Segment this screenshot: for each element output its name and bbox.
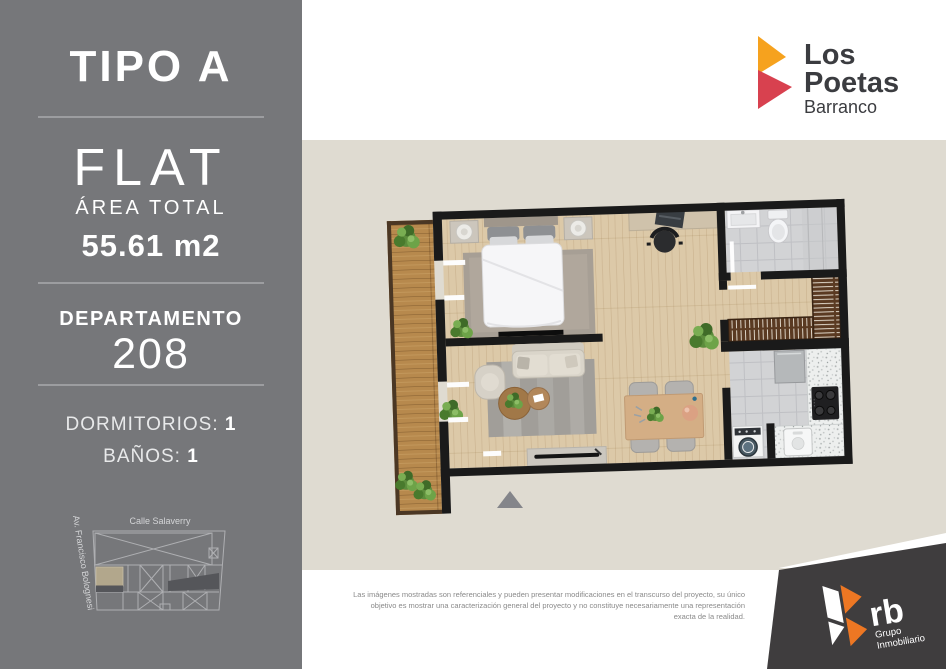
- area-value: 55.61 m2: [0, 228, 302, 264]
- disclaimer-line-1: Las imágenes mostradas son referenciales…: [353, 590, 745, 599]
- developer-logo: rb Grupo Inmobiliario: [822, 571, 926, 659]
- map-dark-corridor: [168, 573, 219, 591]
- brand-name-line2: Poetas: [804, 67, 899, 99]
- developer-group-line1: Grupo: [874, 626, 902, 641]
- rb-logomark-white-ribbon: [822, 583, 843, 625]
- divider: [38, 384, 264, 386]
- flyer-page: { "sidebar": { "bg_color": "#76777a", "t…: [0, 0, 946, 669]
- department-number: 208: [0, 330, 302, 379]
- rb-logomark-orange-triangle-bottom: [846, 614, 870, 646]
- rb-logomark-orange-triangle-top: [840, 582, 864, 614]
- unit-type: FLAT: [0, 138, 302, 198]
- rb-logomark-white-triangle: [828, 619, 847, 645]
- disclaimer-line-3: exacta de la realidad.: [674, 612, 745, 621]
- divider: [38, 282, 264, 284]
- disclaimer-text: Las imágenes mostradas son referenciales…: [325, 589, 745, 622]
- brand-subtitle: Barranco: [804, 97, 877, 117]
- unit-type-title: TIPO A: [0, 42, 302, 92]
- brand-logomark-red-triangle: [758, 70, 792, 109]
- divider: [38, 116, 264, 118]
- bedrooms-row: DORMITORIOS: 1: [0, 414, 302, 436]
- map-dark-band: [96, 586, 123, 593]
- disclaimer-line-2: objetivo es mostrar una caracterización …: [371, 601, 745, 610]
- brand-name-line1: Los: [804, 39, 856, 71]
- street-label-top: Calle Salaverry: [129, 516, 191, 526]
- brand-logomark-orange-triangle: [758, 36, 786, 74]
- brand-logo: Los Poetas Barranco: [758, 36, 899, 117]
- unit-location-highlight: [96, 567, 123, 586]
- developer-group-line2: Inmobiliario: [876, 633, 926, 652]
- bedrooms-label: DORMITORIOS:: [66, 414, 219, 435]
- floorplan-panel-background: [302, 140, 946, 570]
- bedrooms-value: 1: [225, 414, 237, 435]
- bathrooms-row: BAÑOS: 1: [0, 446, 302, 468]
- site-map: Calle Salaverry Av. Francisco Bolognesi: [55, 498, 245, 643]
- area-label: ÁREA TOTAL: [0, 197, 302, 220]
- street-label-left: Av. Francisco Bolognesi: [71, 515, 96, 611]
- bathrooms-label: BAÑOS:: [103, 446, 181, 467]
- department-label: DEPARTAMENTO: [0, 308, 302, 331]
- developer-name: rb: [867, 591, 907, 634]
- bathrooms-value: 1: [187, 446, 199, 467]
